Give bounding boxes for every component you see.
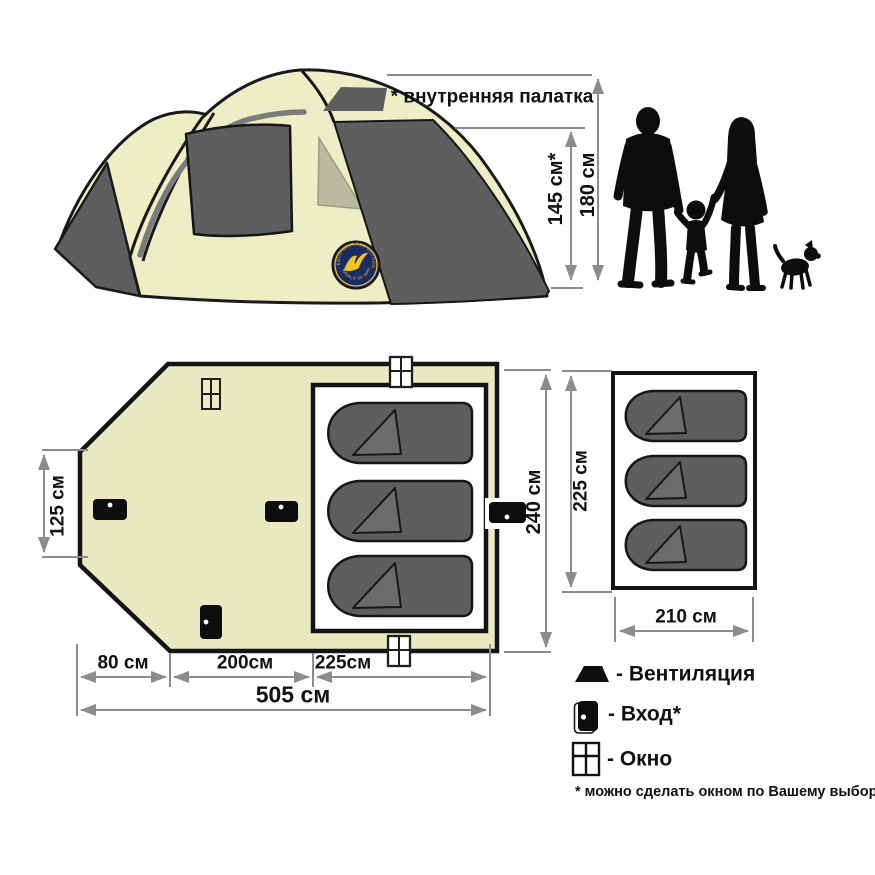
floor-plan-top-view: [80, 357, 530, 666]
legend-footnote: * можно сделать окном по Вашему выбору: [575, 785, 875, 800]
dim-outer-height: 180 см: [578, 153, 598, 218]
dim-total-length: 505 см: [256, 684, 331, 707]
woman-silhouette: [715, 117, 764, 288]
door-icon: [575, 701, 599, 733]
inner-room-detail: [613, 373, 755, 588]
tent-front-window: [186, 125, 292, 236]
man-silhouette: [618, 107, 679, 285]
dim-front-section: 225см: [315, 654, 371, 673]
dim-left-width: 125 см: [49, 475, 68, 537]
vent-icon: [575, 666, 609, 682]
dim-inner-room-width: 210 см: [655, 608, 717, 627]
window-top: [390, 357, 412, 387]
tent-side-view: EQUIPMENT FOR OUTDOOR & FISHING WORLD OF…: [0, 0, 549, 304]
dog-silhouette: [775, 240, 821, 288]
legend-label-door: - Вход*: [608, 704, 681, 725]
tent-spec-sheet: EQUIPMENT FOR OUTDOOR & FISHING WORLD OF…: [0, 0, 875, 875]
door-middle: [265, 501, 298, 522]
diagram-artwork: EQUIPMENT FOR OUTDOOR & FISHING WORLD OF…: [0, 0, 875, 875]
family-silhouette: [618, 107, 821, 288]
legend-label-window: - Окно: [607, 749, 672, 770]
door-left: [93, 499, 127, 520]
sleeping-bags-main: [328, 403, 472, 616]
dim-inner-room-height: 225 см: [572, 450, 591, 512]
dim-inner-height: 145 см*: [546, 153, 566, 226]
window-bottom: [388, 636, 410, 666]
legend-label-vent: - Вентиляция: [616, 664, 755, 685]
window-icon: [573, 743, 599, 775]
dim-back-section: 80 см: [97, 654, 148, 673]
dim-depth: 240 см: [524, 470, 544, 535]
inner-tent-note: * внутренняя палатка: [391, 88, 594, 107]
dim-mid-section: 200см: [217, 654, 273, 673]
door-bottom: [200, 605, 222, 639]
sleeping-bags-detail: [626, 391, 746, 570]
legend-icons: [573, 666, 609, 775]
